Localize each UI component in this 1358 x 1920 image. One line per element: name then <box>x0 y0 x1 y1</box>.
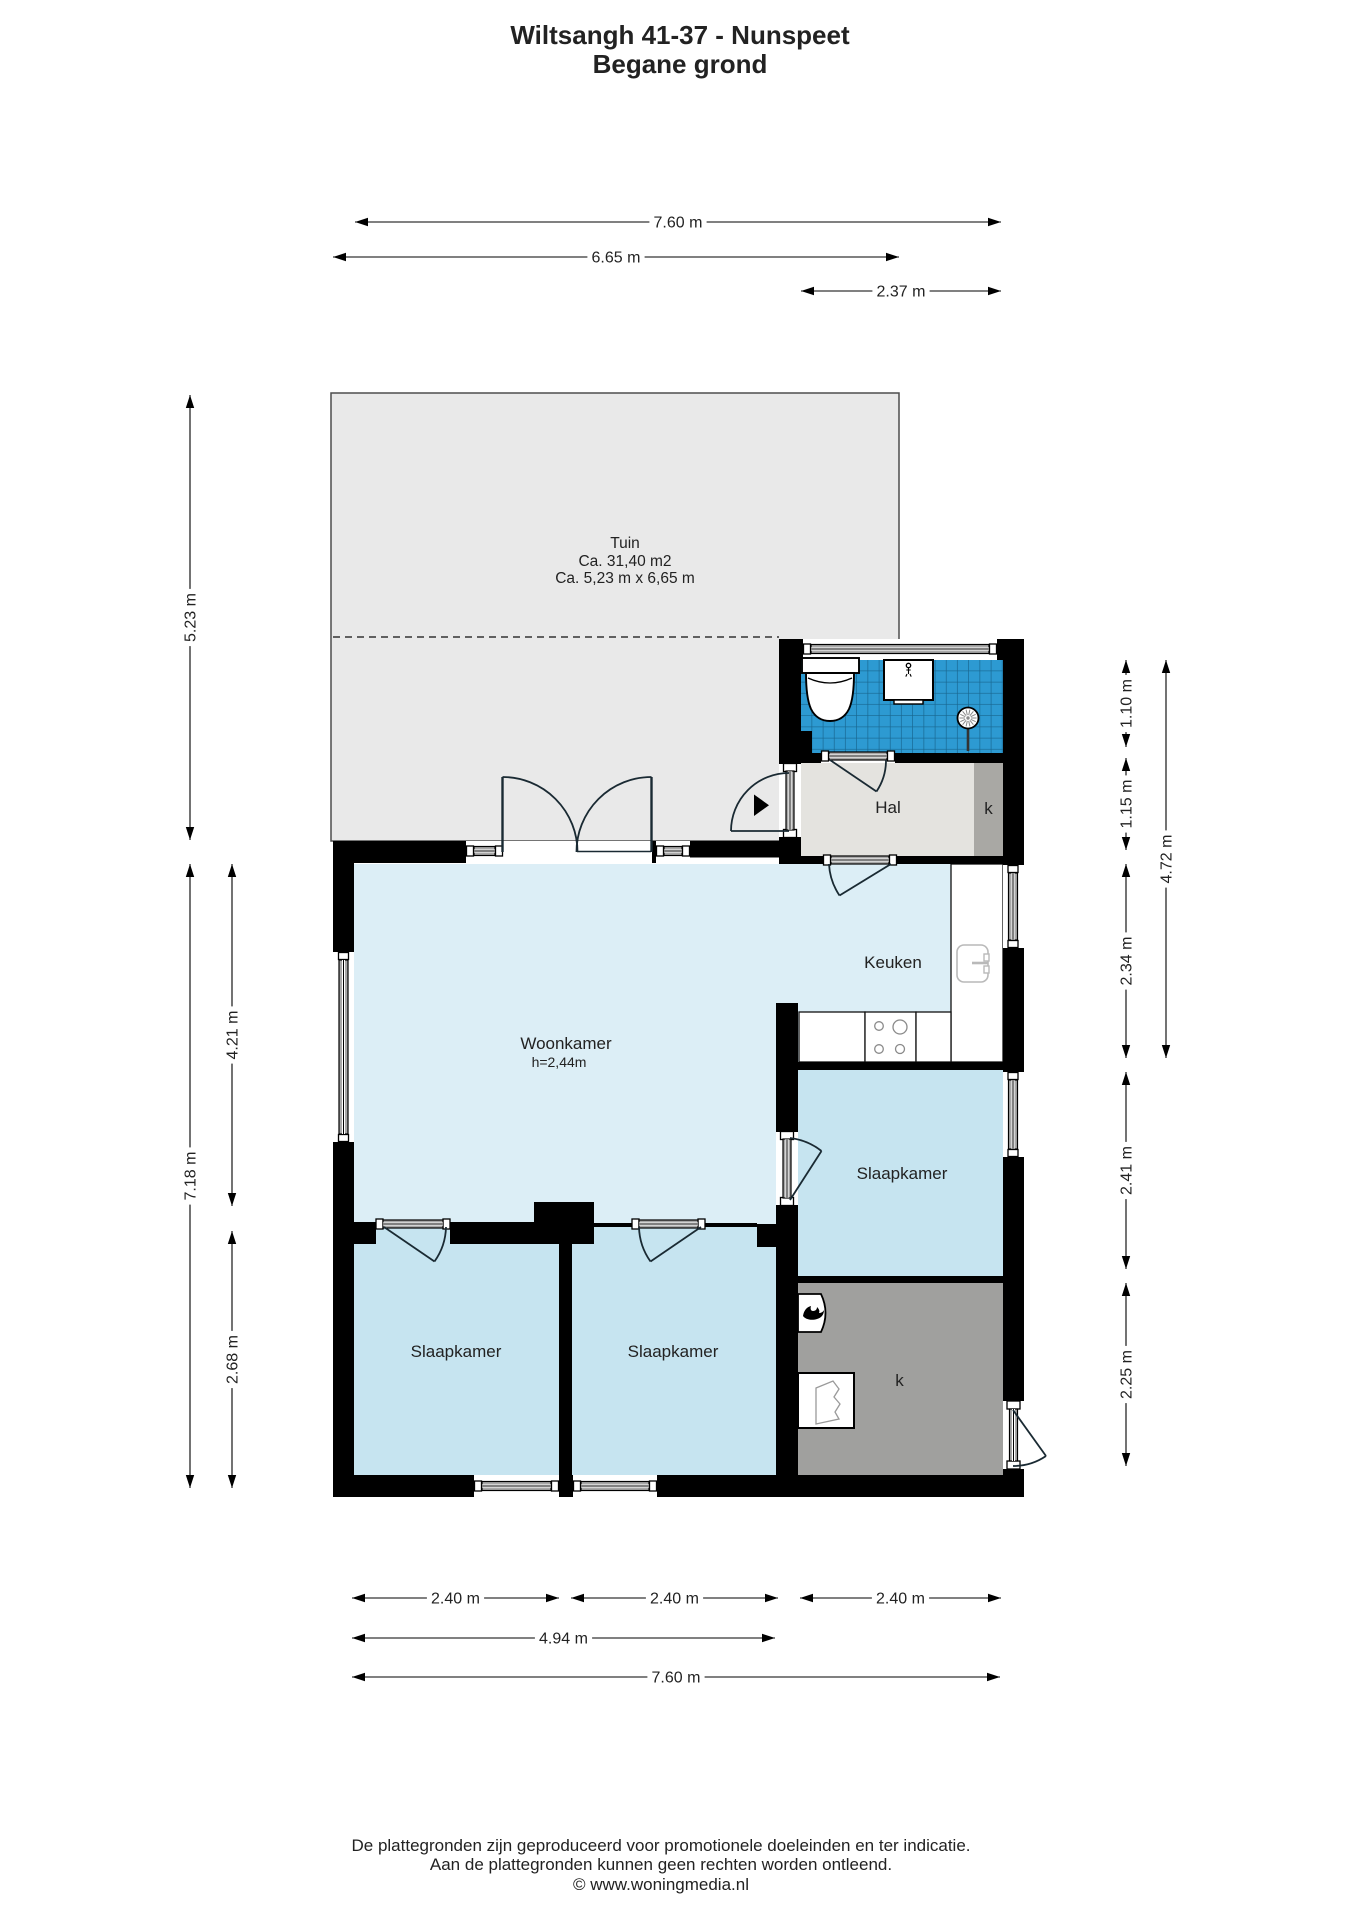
svg-text:Slaapkamer: Slaapkamer <box>628 1342 719 1361</box>
svg-text:Woonkamer: Woonkamer <box>520 1034 612 1053</box>
svg-text:2.25 m: 2.25 m <box>1119 1350 1136 1399</box>
svg-text:4.94 m: 4.94 m <box>539 1631 588 1648</box>
svg-text:4.72 m: 4.72 m <box>1159 835 1176 884</box>
svg-text:2.68 m: 2.68 m <box>225 1335 242 1384</box>
svg-text:2.37 m: 2.37 m <box>877 284 926 301</box>
svg-text:1.10 m: 1.10 m <box>1119 679 1136 728</box>
svg-text:2.40 m: 2.40 m <box>650 1591 699 1608</box>
svg-text:Slaapkamer: Slaapkamer <box>411 1342 502 1361</box>
svg-text:Aan de plattegronden kunnen ge: Aan de plattegronden kunnen geen rechten… <box>430 1855 892 1874</box>
svg-text:Tuin: Tuin <box>610 535 640 552</box>
svg-text:Ca. 31,40 m2: Ca. 31,40 m2 <box>578 553 671 570</box>
svg-text:k: k <box>984 799 993 818</box>
svg-text:5.23 m: 5.23 m <box>183 593 200 642</box>
svg-text:2.41 m: 2.41 m <box>1119 1146 1136 1195</box>
svg-text:Wiltsangh 41-37 - Nunspeet: Wiltsangh 41-37 - Nunspeet <box>510 20 850 50</box>
svg-text:2.34 m: 2.34 m <box>1119 937 1136 986</box>
svg-text:De plattegronden zijn geproduc: De plattegronden zijn geproduceerd voor … <box>351 1836 970 1855</box>
svg-text:Keuken: Keuken <box>864 953 922 972</box>
svg-text:Begane grond: Begane grond <box>593 49 768 79</box>
svg-text:2.40 m: 2.40 m <box>431 1591 480 1608</box>
svg-text:6.65 m: 6.65 m <box>592 250 641 267</box>
svg-text:Hal: Hal <box>875 798 901 817</box>
svg-text:k: k <box>895 1371 904 1390</box>
svg-text:h=2,44m: h=2,44m <box>532 1054 587 1070</box>
svg-text:2.40 m: 2.40 m <box>876 1591 925 1608</box>
svg-text:7.18 m: 7.18 m <box>183 1152 200 1201</box>
svg-text:© www.woningmedia.nl: © www.woningmedia.nl <box>573 1875 749 1894</box>
svg-text:7.60 m: 7.60 m <box>652 1670 701 1687</box>
svg-text:7.60 m: 7.60 m <box>654 215 703 232</box>
svg-text:4.21 m: 4.21 m <box>225 1011 242 1060</box>
svg-text:1.15 m: 1.15 m <box>1119 780 1136 829</box>
svg-text:Ca. 5,23 m x 6,65 m: Ca. 5,23 m x 6,65 m <box>555 570 695 587</box>
svg-text:Slaapkamer: Slaapkamer <box>857 1164 948 1183</box>
